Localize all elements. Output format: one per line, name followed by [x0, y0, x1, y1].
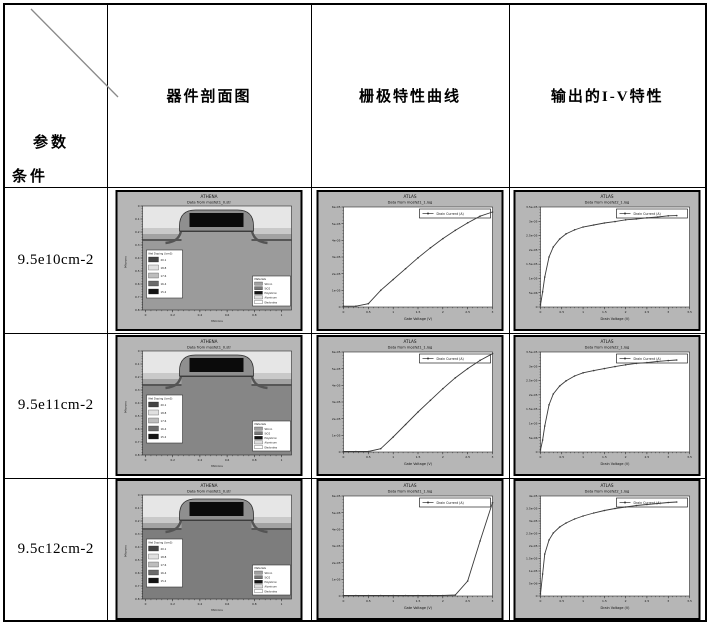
- svg-text:6e-05: 6e-05: [332, 494, 341, 498]
- svg-text:18.8: 18.8: [161, 555, 167, 559]
- svg-text:2.5e-05: 2.5e-05: [526, 379, 538, 383]
- svg-text:3.5: 3.5: [687, 310, 692, 314]
- svg-text:0: 0: [343, 455, 345, 459]
- svg-text:Net Doping (/cm3): Net Doping (/cm3): [149, 540, 173, 544]
- plot-area: [344, 496, 493, 596]
- x-axis-label: Gate Voltage (V): [404, 317, 433, 321]
- svg-text:Data from mosfet1_0.str: Data from mosfet1_0.str: [187, 489, 231, 493]
- svg-text:0.4: 0.4: [198, 458, 203, 462]
- svg-text:0.5: 0.5: [135, 414, 140, 418]
- svg-text:16.4: 16.4: [161, 282, 167, 286]
- corner-label-parameter: 参数: [33, 131, 69, 152]
- gate-curve-plot-row2: ATLASData from mosfet1_1.log01e-052e-053…: [316, 335, 504, 476]
- svg-text:2: 2: [625, 455, 627, 459]
- svg-text:Data from mosfet1_1.log: Data from mosfet1_1.log: [388, 346, 433, 350]
- svg-text:2.5: 2.5: [465, 599, 470, 603]
- svg-text:0.4: 0.4: [135, 545, 140, 549]
- svg-text:Drain Current (A): Drain Current (A): [437, 211, 464, 215]
- svg-text:0.3: 0.3: [135, 532, 140, 536]
- x-axis-label: Gate Voltage (V): [404, 462, 433, 466]
- svg-text:0.5: 0.5: [366, 455, 371, 459]
- output-iv-plot-row1: ATLASData from mosfet2_1.log05e-061e-051…: [513, 190, 701, 331]
- svg-text:2: 2: [442, 310, 444, 314]
- gate-row2-svg: ATLASData from mosfet1_1.log01e-052e-053…: [316, 335, 504, 476]
- results-table: 参数 条件 器件剖面图 栅极特性曲线 输出的I-V特性 9.5e10cm-2 A…: [3, 3, 707, 622]
- svg-text:1.5e-05: 1.5e-05: [526, 262, 538, 266]
- svg-text:Aluminum: Aluminum: [265, 585, 278, 588]
- svg-text:Materials: Materials: [255, 277, 267, 281]
- svg-text:Aluminum: Aluminum: [265, 442, 278, 445]
- svg-text:ATLAS: ATLAS: [403, 194, 416, 199]
- svg-text:0.8: 0.8: [135, 453, 140, 457]
- svg-text:ATLAS: ATLAS: [601, 194, 614, 199]
- svg-text:16.4: 16.4: [161, 571, 167, 575]
- svg-text:0: 0: [145, 602, 147, 606]
- svg-text:3.5e-05: 3.5e-05: [526, 350, 538, 354]
- svg-text:0.5: 0.5: [560, 310, 565, 314]
- svg-text:Data from mosfet1_1.log: Data from mosfet1_1.log: [388, 489, 433, 493]
- svg-text:0: 0: [536, 305, 538, 309]
- svg-text:0: 0: [145, 458, 147, 462]
- svg-text:ATLAS: ATLAS: [601, 339, 614, 344]
- svg-text:1: 1: [392, 310, 394, 314]
- svg-text:0.5: 0.5: [560, 599, 565, 603]
- svg-text:15.2: 15.2: [161, 579, 167, 583]
- svg-text:SiO2: SiO2: [265, 433, 271, 436]
- athena-plot-row2: ATHENAData from mosfet1_0.str00.10.20.30…: [115, 335, 303, 476]
- svg-text:0.7: 0.7: [135, 440, 140, 444]
- svg-text:1: 1: [582, 310, 584, 314]
- svg-text:0.7: 0.7: [135, 584, 140, 588]
- svg-text:1.5: 1.5: [416, 455, 421, 459]
- svg-text:3e-05: 3e-05: [529, 364, 538, 368]
- svg-text:5e-05: 5e-05: [332, 221, 341, 225]
- svg-text:0: 0: [138, 349, 140, 353]
- svg-text:0.4: 0.4: [135, 401, 140, 405]
- svg-text:Silicon: Silicon: [265, 282, 273, 285]
- svg-text:0.5: 0.5: [560, 455, 565, 459]
- svg-text:Net Doping (/cm3): Net Doping (/cm3): [149, 251, 173, 255]
- svg-text:2.5: 2.5: [465, 310, 470, 314]
- svg-text:2.5: 2.5: [465, 455, 470, 459]
- svg-text:2e-05: 2e-05: [529, 544, 538, 548]
- svg-text:4e-05: 4e-05: [332, 383, 341, 387]
- svg-text:3e-05: 3e-05: [332, 544, 341, 548]
- svg-text:Drain Current (A): Drain Current (A): [634, 357, 661, 361]
- svg-text:5e-06: 5e-06: [529, 290, 538, 294]
- svg-text:0.4: 0.4: [198, 602, 203, 606]
- svg-text:SiO2: SiO2: [265, 287, 271, 290]
- svg-text:1: 1: [582, 455, 584, 459]
- svg-text:2.5e-05: 2.5e-05: [526, 233, 538, 237]
- svg-text:0: 0: [540, 599, 542, 603]
- svg-text:6e-05: 6e-05: [332, 205, 341, 209]
- svg-text:Polysilicon: Polysilicon: [265, 437, 278, 440]
- svg-text:5e-06: 5e-06: [529, 581, 538, 585]
- legend: Drain Current (A): [617, 209, 688, 218]
- materials-legend: MaterialsSiliconSiO2PolysiliconAluminumE…: [253, 421, 291, 451]
- svg-text:Silicon: Silicon: [265, 571, 273, 574]
- svg-text:2e-05: 2e-05: [332, 560, 341, 564]
- svg-text:0: 0: [138, 493, 140, 497]
- athena-plot-row1: ATHENAData from mosfet1_0.str00.10.20.30…: [115, 190, 303, 331]
- svg-text:0.7: 0.7: [135, 295, 140, 299]
- svg-text:0.2: 0.2: [135, 375, 140, 379]
- svg-text:2: 2: [625, 310, 627, 314]
- iv-row2-svg: ATLASData from mosfet2_1.log05e-061e-051…: [513, 335, 701, 476]
- svg-text:1e-05: 1e-05: [529, 422, 538, 426]
- svg-text:2e-05: 2e-05: [332, 271, 341, 275]
- athena-row3-svg: ATHENAData from mosfet1_0.str00.10.20.30…: [115, 479, 303, 620]
- header-device-cross-section: 器件剖面图: [107, 4, 311, 187]
- athena-row1-svg: ATHENAData from mosfet1_0.str00.10.20.30…: [115, 190, 303, 331]
- svg-text:1e-05: 1e-05: [529, 276, 538, 280]
- svg-text:4e-05: 4e-05: [332, 238, 341, 242]
- svg-text:2e-05: 2e-05: [332, 417, 341, 421]
- svg-text:0.8: 0.8: [135, 597, 140, 601]
- svg-text:0.1: 0.1: [135, 506, 140, 510]
- svg-text:0.8: 0.8: [252, 458, 257, 462]
- svg-text:ATLAS: ATLAS: [601, 483, 614, 488]
- svg-text:0: 0: [343, 599, 345, 603]
- polysilicon-gate: [190, 358, 244, 372]
- svg-text:0.6: 0.6: [135, 427, 140, 431]
- header-gate-characteristic: 栅极特性曲线: [311, 4, 509, 187]
- svg-text:0: 0: [138, 204, 140, 208]
- x-axis-label: Microns: [211, 608, 223, 612]
- svg-text:18.8: 18.8: [161, 266, 167, 270]
- svg-text:2.5: 2.5: [645, 599, 650, 603]
- svg-text:1: 1: [281, 313, 283, 317]
- athena-plot-row3: ATHENAData from mosfet1_0.str00.10.20.30…: [115, 479, 303, 620]
- plot-area: [541, 496, 690, 596]
- svg-text:0.2: 0.2: [170, 458, 175, 462]
- svg-text:0.5: 0.5: [366, 599, 371, 603]
- doping-legend: Net Doping (/cm3)20.118.817.616.415.2: [147, 250, 183, 298]
- svg-text:0.5: 0.5: [135, 558, 140, 562]
- svg-text:0: 0: [343, 310, 345, 314]
- svg-text:0.5: 0.5: [366, 310, 371, 314]
- svg-text:0.8: 0.8: [135, 308, 140, 312]
- svg-text:4e-05: 4e-05: [332, 527, 341, 531]
- svg-text:ATLAS: ATLAS: [403, 339, 416, 344]
- iv-row1-svg: ATLASData from mosfet2_1.log05e-061e-051…: [513, 190, 701, 331]
- svg-text:5e-05: 5e-05: [332, 367, 341, 371]
- svg-text:0.3: 0.3: [135, 243, 140, 247]
- svg-text:Aluminum: Aluminum: [265, 296, 278, 299]
- svg-text:Electrodes: Electrodes: [265, 301, 278, 304]
- svg-text:0: 0: [536, 450, 538, 454]
- svg-text:2.5e-05: 2.5e-05: [526, 531, 538, 535]
- svg-text:0.6: 0.6: [135, 282, 140, 286]
- svg-text:17.6: 17.6: [161, 274, 167, 278]
- svg-text:Drain Current (A): Drain Current (A): [437, 357, 464, 361]
- svg-text:Drain Current (A): Drain Current (A): [437, 500, 464, 504]
- svg-text:1: 1: [392, 599, 394, 603]
- svg-text:Data from mosfet2_1.log: Data from mosfet2_1.log: [585, 489, 630, 493]
- svg-text:3: 3: [668, 455, 670, 459]
- svg-text:3: 3: [492, 455, 494, 459]
- svg-text:ATHENA: ATHENA: [201, 194, 218, 199]
- svg-text:2: 2: [442, 599, 444, 603]
- row-label-2: 9.5e11cm-2: [4, 333, 107, 478]
- svg-text:2: 2: [442, 455, 444, 459]
- svg-text:ATLAS: ATLAS: [403, 483, 416, 488]
- x-axis-label: Microns: [211, 464, 223, 468]
- x-axis-label: Drain Voltage (V): [601, 606, 631, 610]
- svg-text:Materials: Materials: [255, 422, 267, 426]
- legend: Drain Current (A): [420, 354, 491, 363]
- svg-text:20.1: 20.1: [161, 258, 167, 262]
- svg-text:Silicon: Silicon: [265, 428, 273, 431]
- gate-curve-plot-row1: ATLASData from mosfet1_1.log01e-052e-053…: [316, 190, 504, 331]
- svg-text:1: 1: [281, 458, 283, 462]
- svg-text:Materials: Materials: [255, 566, 267, 570]
- x-axis-label: Gate Voltage (V): [404, 606, 433, 610]
- svg-text:0.2: 0.2: [135, 230, 140, 234]
- doping-legend: Net Doping (/cm3)20.118.817.616.415.2: [147, 539, 183, 587]
- row-label-3: 9.5c12cm-2: [4, 478, 107, 621]
- svg-text:0.4: 0.4: [198, 313, 203, 317]
- svg-text:2e-05: 2e-05: [529, 247, 538, 251]
- svg-text:1e-05: 1e-05: [332, 433, 341, 437]
- y-axis-label: Microns: [124, 544, 128, 556]
- svg-text:1.5: 1.5: [416, 599, 421, 603]
- svg-text:Data from mosfet1_1.log: Data from mosfet1_1.log: [388, 200, 433, 204]
- output-iv-plot-row2: ATLASData from mosfet2_1.log05e-061e-051…: [513, 335, 701, 476]
- svg-text:17.6: 17.6: [161, 563, 167, 567]
- svg-text:Data from mosfet2_1.log: Data from mosfet2_1.log: [585, 200, 630, 204]
- svg-text:5e-05: 5e-05: [332, 510, 341, 514]
- svg-text:1: 1: [582, 599, 584, 603]
- svg-text:0.8: 0.8: [252, 602, 257, 606]
- svg-text:3e-05: 3e-05: [529, 219, 538, 223]
- athena-row2-svg: ATHENAData from mosfet1_0.str00.10.20.30…: [115, 335, 303, 476]
- svg-text:0: 0: [536, 594, 538, 598]
- svg-text:1e-05: 1e-05: [332, 577, 341, 581]
- svg-text:0.6: 0.6: [225, 602, 230, 606]
- svg-text:Electrodes: Electrodes: [265, 446, 278, 449]
- svg-text:Polysilicon: Polysilicon: [265, 292, 278, 295]
- svg-text:0.6: 0.6: [225, 458, 230, 462]
- svg-text:0: 0: [339, 305, 341, 309]
- svg-text:2.5: 2.5: [645, 310, 650, 314]
- x-axis-label: Drain Voltage (V): [601, 462, 631, 466]
- materials-legend: MaterialsSiliconSiO2PolysiliconAluminumE…: [253, 565, 291, 595]
- x-axis-label: Microns: [211, 319, 223, 323]
- svg-text:3: 3: [492, 599, 494, 603]
- svg-text:Data from mosfet1_0.str: Data from mosfet1_0.str: [187, 200, 231, 204]
- svg-text:1: 1: [281, 602, 283, 606]
- svg-text:SiO2: SiO2: [265, 576, 271, 579]
- polysilicon-gate: [190, 213, 244, 227]
- svg-text:ATHENA: ATHENA: [201, 483, 218, 488]
- svg-text:0.8: 0.8: [252, 313, 257, 317]
- svg-text:1.5: 1.5: [602, 599, 607, 603]
- svg-text:0.3: 0.3: [135, 388, 140, 392]
- svg-text:4e-05: 4e-05: [529, 494, 538, 498]
- svg-text:3.5: 3.5: [687, 599, 692, 603]
- svg-text:0.2: 0.2: [170, 313, 175, 317]
- svg-text:3: 3: [668, 599, 670, 603]
- svg-text:0: 0: [540, 310, 542, 314]
- svg-text:0: 0: [145, 313, 147, 317]
- svg-text:Drain Current (A): Drain Current (A): [634, 211, 661, 215]
- materials-legend: MaterialsSiliconSiO2PolysiliconAluminumE…: [253, 276, 291, 306]
- svg-text:18.8: 18.8: [161, 411, 167, 415]
- doping-legend: Net Doping (/cm3)20.118.817.616.415.2: [147, 395, 183, 443]
- svg-text:1.5e-05: 1.5e-05: [526, 556, 538, 560]
- x-axis-label: Drain Voltage (V): [601, 317, 631, 321]
- svg-text:0: 0: [339, 594, 341, 598]
- svg-text:1e-05: 1e-05: [529, 569, 538, 573]
- svg-text:6e-05: 6e-05: [332, 350, 341, 354]
- svg-text:3e-05: 3e-05: [332, 255, 341, 259]
- svg-text:3: 3: [492, 310, 494, 314]
- svg-text:20.1: 20.1: [161, 547, 167, 551]
- svg-text:0.5: 0.5: [135, 269, 140, 273]
- svg-text:Data from mosfet1_0.str: Data from mosfet1_0.str: [187, 346, 231, 350]
- svg-text:0.2: 0.2: [135, 519, 140, 523]
- svg-text:5e-06: 5e-06: [529, 436, 538, 440]
- svg-text:ATHENA: ATHENA: [201, 339, 218, 344]
- svg-text:Data from mosfet2_1.log: Data from mosfet2_1.log: [585, 346, 630, 350]
- iv-row3-svg: ATLASData from mosfet2_1.log05e-061e-051…: [513, 479, 701, 620]
- svg-text:Net Doping (/cm3): Net Doping (/cm3): [149, 397, 173, 401]
- svg-text:15.2: 15.2: [161, 435, 167, 439]
- svg-text:15.2: 15.2: [161, 290, 167, 294]
- svg-text:3.5: 3.5: [687, 455, 692, 459]
- svg-text:1e-05: 1e-05: [332, 288, 341, 292]
- svg-text:1.5: 1.5: [416, 310, 421, 314]
- header-output-iv: 输出的I-V特性: [509, 4, 706, 187]
- svg-text:2e-05: 2e-05: [529, 393, 538, 397]
- figure-page: 参数 条件 器件剖面图 栅极特性曲线 输出的I-V特性 9.5e10cm-2 A…: [0, 0, 712, 624]
- legend: Drain Current (A): [420, 498, 491, 507]
- svg-text:0.1: 0.1: [135, 362, 140, 366]
- corner-label-condition: 条件: [12, 165, 48, 186]
- svg-text:16.4: 16.4: [161, 427, 167, 431]
- svg-text:3: 3: [668, 310, 670, 314]
- svg-text:20.1: 20.1: [161, 403, 167, 407]
- gate-row3-svg: ATLASData from mosfet1_1.log01e-052e-053…: [316, 479, 504, 620]
- svg-text:0: 0: [339, 450, 341, 454]
- svg-text:1: 1: [392, 455, 394, 459]
- svg-text:0.2: 0.2: [170, 602, 175, 606]
- svg-text:2.5: 2.5: [645, 455, 650, 459]
- svg-text:3e-05: 3e-05: [529, 519, 538, 523]
- svg-text:0.4: 0.4: [135, 256, 140, 260]
- gate-row1-svg: ATLASData from mosfet1_1.log01e-052e-053…: [316, 190, 504, 331]
- svg-text:1.5: 1.5: [602, 310, 607, 314]
- svg-text:3.5e-05: 3.5e-05: [526, 506, 538, 510]
- svg-text:1.5e-05: 1.5e-05: [526, 407, 538, 411]
- y-axis-label: Microns: [124, 401, 128, 413]
- row-label-1: 9.5e10cm-2: [4, 187, 107, 333]
- polysilicon-gate: [190, 502, 244, 516]
- svg-text:0.6: 0.6: [135, 571, 140, 575]
- y-axis-label: Microns: [124, 255, 128, 267]
- svg-text:3.5e-05: 3.5e-05: [526, 205, 538, 209]
- svg-text:0.6: 0.6: [225, 313, 230, 317]
- svg-text:Polysilicon: Polysilicon: [265, 581, 278, 584]
- svg-text:Electrodes: Electrodes: [265, 590, 278, 593]
- gate-curve-plot-row3: ATLASData from mosfet1_1.log01e-052e-053…: [316, 479, 504, 620]
- output-iv-plot-row3: ATLASData from mosfet2_1.log05e-061e-051…: [513, 479, 701, 620]
- corner-cell: 参数 条件: [4, 4, 107, 187]
- svg-text:0: 0: [540, 455, 542, 459]
- svg-text:2: 2: [625, 599, 627, 603]
- svg-text:0.1: 0.1: [135, 217, 140, 221]
- svg-text:1.5: 1.5: [602, 455, 607, 459]
- svg-text:17.6: 17.6: [161, 419, 167, 423]
- svg-text:3e-05: 3e-05: [332, 400, 341, 404]
